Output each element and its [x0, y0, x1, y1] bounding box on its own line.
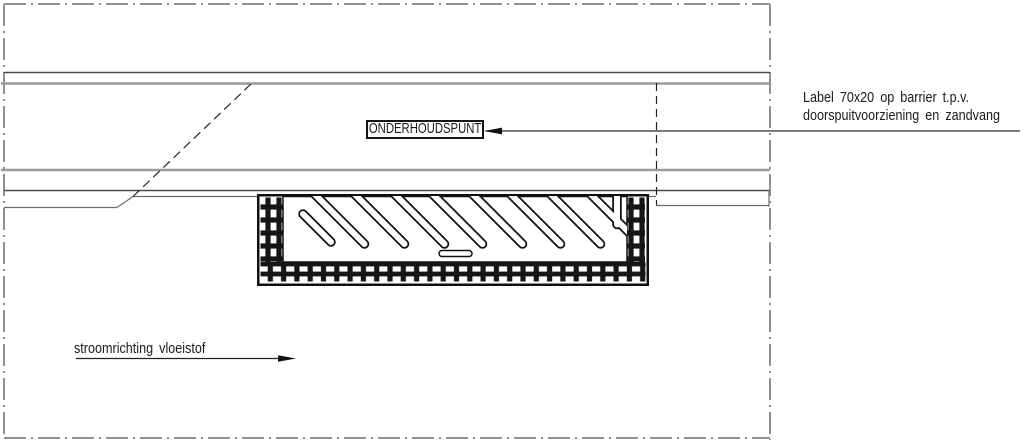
drain-grate	[258, 187, 680, 285]
drawing-linework	[0, 0, 1024, 443]
channel-edge-right	[648, 191, 769, 207]
hidden-edge-dashed-lines	[133, 83, 657, 205]
grate-band-bottom	[261, 262, 646, 282]
maintenance-point-label: ONDERHOUDSPUNT	[369, 122, 481, 137]
maintenance-point-callout: ONDERHOUDSPUNT	[366, 120, 484, 139]
callout-leader-line	[484, 128, 1020, 135]
annotation-line-1: Label 70x20 op barrier t.p.v.	[803, 89, 969, 107]
channel-edge-left	[4, 197, 258, 208]
diagonal-dashed-line	[133, 83, 252, 197]
label-annotation: Label 70x20 op barrier t.p.v. doorspuitv…	[803, 89, 1024, 124]
flow-direction-label: stroomrichting vloeistof	[74, 340, 230, 357]
flow-arrowhead-icon	[278, 355, 296, 362]
annotation-line-2: doorspuitvoorziening en zandvang	[803, 107, 1000, 125]
technical-drawing-canvas: ONDERHOUDSPUNT Label 70x20 op barrier t.…	[0, 0, 1024, 443]
leader-arrowhead-icon	[484, 128, 502, 135]
grate-band-left	[261, 198, 284, 263]
